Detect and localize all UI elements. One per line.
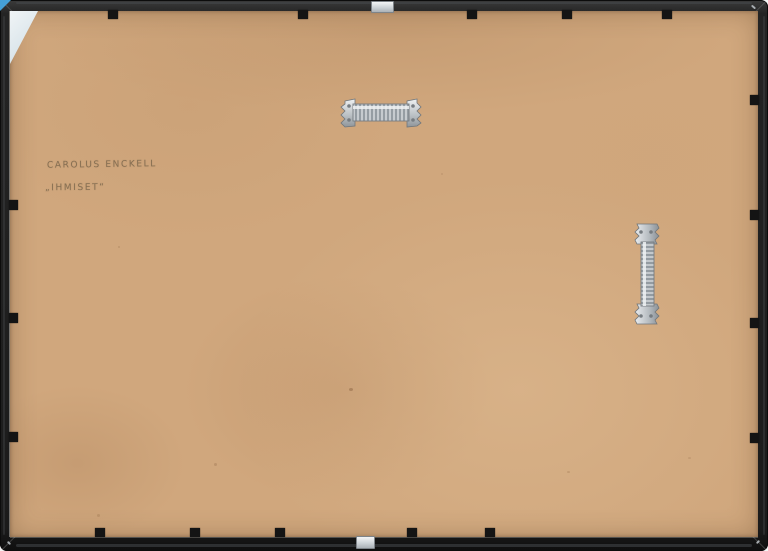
frame-tab bbox=[750, 210, 759, 220]
frame-tab bbox=[275, 528, 285, 537]
sawtooth-hanger-icon-vertical bbox=[629, 220, 665, 328]
board-speck bbox=[118, 246, 120, 248]
frame-tab bbox=[9, 432, 18, 442]
frame-tab bbox=[485, 528, 495, 537]
frame-tab bbox=[9, 313, 18, 323]
frame-tab bbox=[298, 10, 308, 19]
frame-tab bbox=[95, 528, 105, 537]
frame-tab bbox=[407, 528, 417, 537]
frame-tab bbox=[750, 318, 759, 328]
spring-clip-icon bbox=[371, 1, 394, 13]
frame-tab bbox=[108, 10, 118, 19]
board-speck bbox=[349, 388, 353, 391]
pencil-inscription-artist: CAROLUS ENCKELL bbox=[47, 159, 157, 171]
frame-right-rail-highlight bbox=[763, 16, 765, 535]
board-speck bbox=[688, 457, 691, 459]
frame-tab bbox=[9, 200, 18, 210]
frame-bottom-rail-highlight bbox=[16, 544, 752, 547]
frame-tab bbox=[750, 95, 759, 105]
pencil-inscription-title: „IHMISET“ bbox=[45, 183, 106, 194]
frame-tab bbox=[562, 10, 572, 19]
board-speck bbox=[97, 514, 100, 517]
board-speck bbox=[214, 463, 217, 466]
board-speck bbox=[441, 173, 443, 175]
frame-tab bbox=[662, 10, 672, 19]
board-speck bbox=[567, 471, 570, 473]
framed-artwork-back-photo: CAROLUS ENCKELL „IHMISET“ bbox=[0, 0, 768, 551]
spring-clip-icon bbox=[356, 536, 375, 549]
frame-tab bbox=[467, 10, 477, 19]
frame-tab bbox=[190, 528, 200, 537]
frame-left-rail-highlight bbox=[3, 16, 5, 535]
sawtooth-hanger-icon-horizontal bbox=[333, 93, 429, 133]
frame-tab bbox=[750, 433, 759, 443]
